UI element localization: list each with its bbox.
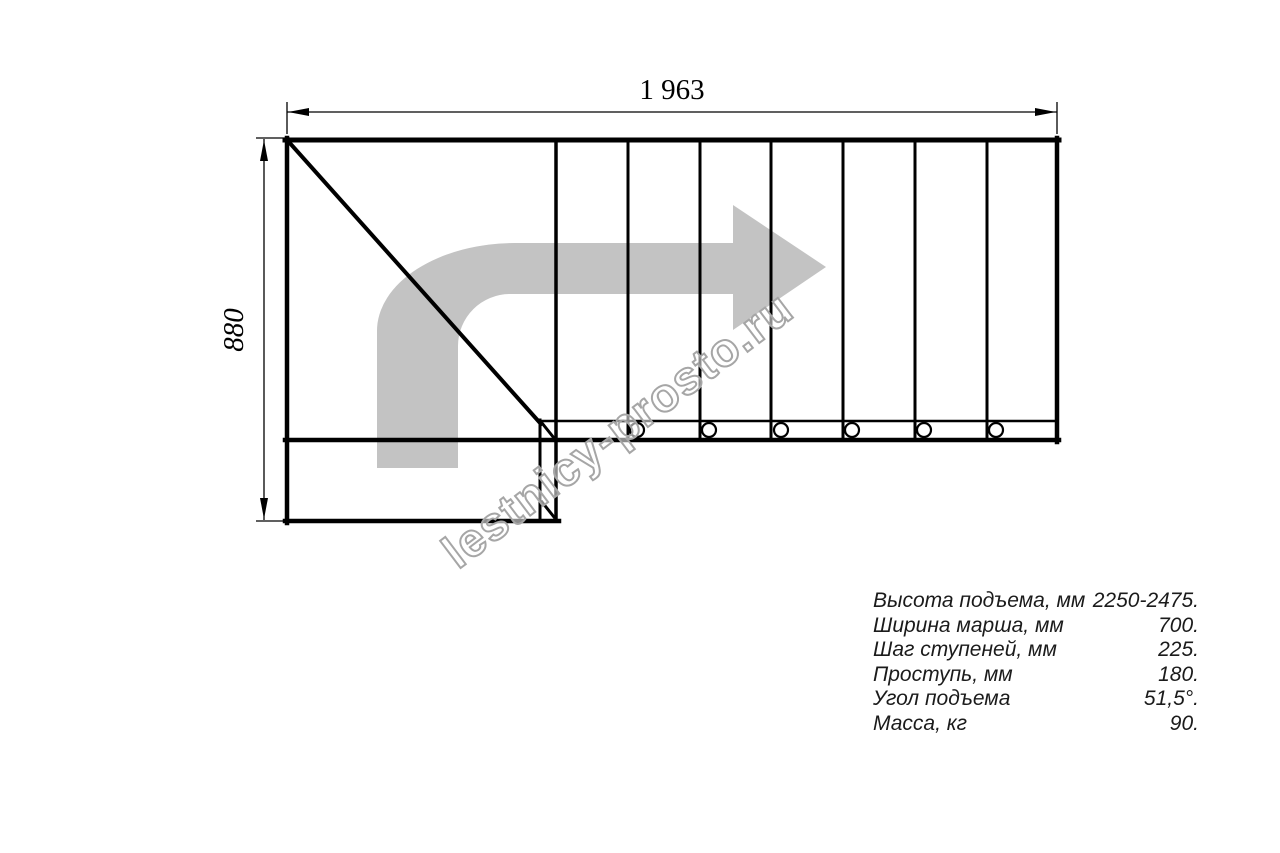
watermark-text: lestnicy-prosto.ru xyxy=(432,281,802,578)
spec-value: 51,5°. xyxy=(1144,687,1199,712)
spec-value: 2250-2475. xyxy=(1093,589,1199,614)
width-dimension: 1 963 xyxy=(287,74,1057,134)
spec-label: Угол подъема xyxy=(873,687,1010,712)
spec-value: 700. xyxy=(1158,614,1199,639)
spec-row: Угол подъема 51,5°. xyxy=(873,687,1199,712)
dimension-arrow-right xyxy=(1035,108,1056,116)
baluster-circle xyxy=(845,423,859,437)
staircase-drawing-page: 1 963 880 lestnicy-prosto.ru Высота подъ… xyxy=(0,0,1280,853)
newel-hatch-top xyxy=(542,423,554,438)
spec-row: Масса, кг 90. xyxy=(873,712,1199,737)
dimension-arrow-top xyxy=(260,140,268,161)
spec-label: Проступь, мм xyxy=(873,663,1013,688)
spec-label: Шаг ступеней, мм xyxy=(873,638,1057,663)
spec-value: 180. xyxy=(1158,663,1199,688)
spec-row: Высота подъема, мм 2250-2475. xyxy=(873,589,1199,614)
spec-table: Высота подъема, мм 2250-2475. Ширина мар… xyxy=(873,589,1199,737)
baluster-circle xyxy=(702,423,716,437)
dimension-arrow-left xyxy=(288,108,309,116)
baluster-circle xyxy=(774,423,788,437)
spec-label: Высота подъема, мм xyxy=(873,589,1085,614)
spec-label: Масса, кг xyxy=(873,712,967,737)
dimension-arrow-bottom xyxy=(260,498,268,519)
baluster-circles xyxy=(630,423,1003,437)
spec-row: Проступь, мм 180. xyxy=(873,663,1199,688)
spec-row: Ширина марша, мм 700. xyxy=(873,614,1199,639)
width-dimension-text: 1 963 xyxy=(639,74,704,106)
baluster-circle xyxy=(917,423,931,437)
spec-value: 225. xyxy=(1158,638,1199,663)
baluster-circle xyxy=(989,423,1003,437)
spec-label: Ширина марша, мм xyxy=(873,614,1064,639)
height-dimension-text: 880 xyxy=(218,308,250,352)
spec-row: Шаг ступеней, мм 225. xyxy=(873,638,1199,663)
spec-value: 90. xyxy=(1170,712,1199,737)
height-dimension: 880 xyxy=(218,138,290,521)
